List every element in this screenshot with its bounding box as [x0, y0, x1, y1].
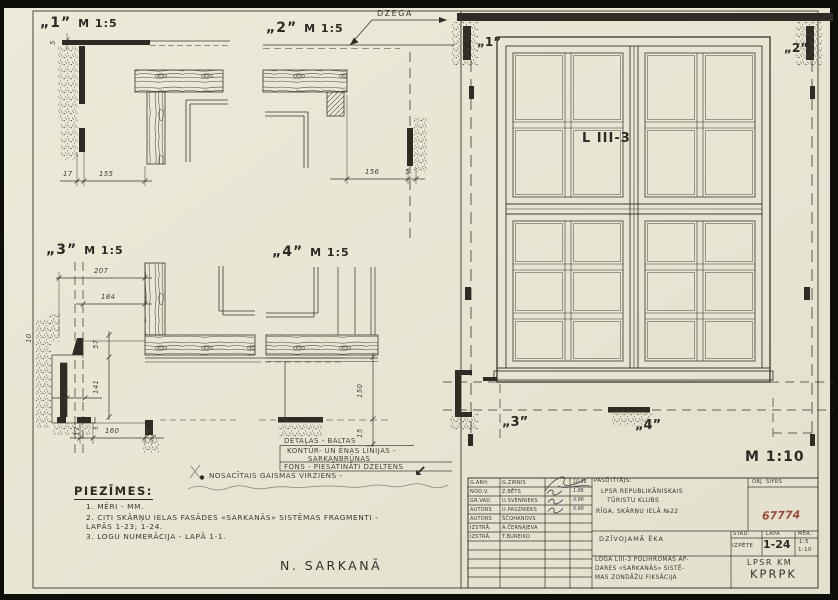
- elevation-marker-2: „2”: [784, 42, 808, 54]
- drawing-description-line2: DARES «SARKANĀS» SISTĒ-: [595, 567, 684, 573]
- object-code-value: 67774: [762, 509, 801, 521]
- scale-column-header: MĒR.: [798, 532, 812, 537]
- note-item-3: 3. LOGU NUMERĀCIJA - LAPĀ 1-1.: [86, 532, 398, 541]
- object-code-label: OBJ. ŠIFRS: [752, 480, 782, 485]
- d3-dim-10: 10: [26, 333, 33, 343]
- stage-value: IZPĒTE: [732, 544, 753, 550]
- elevation-marker-4: „4”: [635, 419, 661, 432]
- titleblock-row: G.ARH. G.ZIRNIS 10.86: [469, 478, 591, 487]
- drawing-description-line1: LOGA LIII-3 POLIHROMĀS AP-: [595, 558, 689, 564]
- d4-dim-15: 15: [357, 428, 364, 438]
- titleblock-row: GR.VAD. U.SVENNIEKS X.86: [469, 496, 591, 505]
- d3-dim-17: 17: [74, 426, 81, 436]
- note-item-2: 2. CITI SKĀRŅU IELAS FASĀDES «SARKANĀS» …: [86, 513, 398, 531]
- row-date: 10.86: [573, 480, 587, 485]
- d3-dim-207: 207: [94, 268, 108, 275]
- notes-title: PIEZĪMES:: [74, 486, 153, 500]
- d3-dim-5a: 5: [94, 426, 100, 430]
- d3-dim-57: 57: [93, 339, 100, 349]
- detail-4-linework: [259, 267, 392, 447]
- customer-address: RĪGA, SKĀRŅU IELĀ №22: [596, 509, 679, 515]
- notes-list: 1. MĒRI - MM. 2. CITI SKĀRŅU IELAS FASĀD…: [86, 502, 398, 543]
- row-role: IZSTRĀ.: [470, 534, 491, 540]
- detail-3-scale: M 1:5: [84, 244, 123, 257]
- titleblock-row: AUTORS ŠČOHANOVS: [469, 514, 591, 523]
- note-item-1: 1. MĒRI - MM.: [86, 502, 398, 511]
- dzega-callout-label: DZEGA: [377, 10, 413, 18]
- row-date: X.86: [573, 498, 584, 503]
- row-role: NOD.V.: [470, 489, 489, 495]
- titleblock-row: NOD.V. Z.BĒTS 1.86: [469, 487, 591, 496]
- legend-row-details: DETAĻAS - BALTAS: [284, 438, 356, 445]
- detail-2-number: „2”: [266, 20, 297, 36]
- detail-2-linework: [263, 17, 455, 238]
- row-role: G.ARH.: [470, 480, 489, 486]
- row-name: G.ZIRNIS: [502, 480, 526, 486]
- detail-1-title: „1”M 1:5: [40, 14, 118, 30]
- light-direction-label: NOSACĪTAIS GAISMAS VIRZIENS -: [209, 472, 342, 479]
- drawing-sheet: „1”M 1:5 „2”M 1:5 „3”M 1:5 „4”M 1:5 DZEG…: [0, 0, 838, 600]
- titleblock-row: IZSTRĀ. A.ČERNAJEVA: [469, 523, 591, 532]
- d4-dim-150: 150: [357, 384, 364, 398]
- legend-row-contour: KONTŪR- UN ĒNAS LĪNIJAS -: [287, 448, 396, 455]
- elevation-marker-3: „3”: [502, 416, 528, 429]
- d1-dim-17: 17: [63, 171, 73, 178]
- row-role: AUTORS: [470, 516, 492, 522]
- row-date: X.86: [573, 507, 584, 512]
- customer-name-line1: LPSR REPUBLIKĀNISKAIS: [601, 489, 683, 495]
- detail-3-number: „3”: [46, 242, 77, 258]
- sheet-number: 1-24: [763, 539, 791, 550]
- d3-dim-141: 141: [93, 380, 100, 394]
- d3-dim-18: 18: [60, 389, 68, 395]
- row-name: U.PASZNIEKS: [502, 507, 537, 513]
- row-name: Z.BĒTS: [502, 489, 521, 495]
- row-role: GR.VAD.: [470, 498, 492, 504]
- row-name: T.BUREIKO: [502, 534, 530, 540]
- row-name: U.SVENNIEKS: [502, 498, 538, 504]
- detail-1-number: „1”: [40, 15, 71, 31]
- organization-line2: KPRPK: [750, 569, 797, 581]
- customer-label: PASŪTĪTĀJS:: [594, 479, 632, 485]
- building-name: DZĪVOJAMĀ ĒKA: [599, 536, 664, 543]
- window-type-label: L III-3: [582, 132, 631, 145]
- detail-2-scale: M 1:5: [304, 22, 343, 35]
- d2-dim-5: 5: [405, 169, 410, 176]
- sheet-bottom-label: N. SARKANĀ: [280, 560, 382, 573]
- stage-column-header: STAD.: [733, 532, 750, 537]
- row-date: 1.86: [573, 489, 584, 494]
- d1-dim-5: 5: [50, 40, 57, 45]
- scale-value-2: 1:10: [798, 548, 812, 554]
- organization-line1: LPSR KM: [747, 559, 792, 567]
- light-direction-arrow-icon: ↙: [414, 464, 427, 479]
- d3-dim-5b: 5: [145, 428, 150, 435]
- row-name: A.ČERNAJEVA: [502, 525, 538, 531]
- sheet-column-header: LAPA: [766, 532, 780, 537]
- detail-4-number: „4”: [272, 244, 303, 260]
- d1-dim-155: 155: [99, 171, 113, 178]
- drawing-description-line3: MAS ZONDĀŽU FIKSĀCIJA: [595, 576, 677, 582]
- elevation-linework: [443, 13, 833, 446]
- scale-value-1: 1:5: [799, 540, 809, 546]
- detail-1-scale: M 1:5: [78, 17, 117, 30]
- legend-row-background: FONS - PIESĀTINĀTI DZELTENS: [284, 464, 403, 471]
- row-role: AUTORS: [470, 507, 492, 513]
- elevation-marker-1: „1”: [477, 36, 501, 48]
- detail-1-linework: [58, 33, 230, 186]
- row-name: ŠČOHANOVS: [502, 516, 536, 522]
- elevation-scale-label: M 1:10: [745, 450, 805, 464]
- detail-4-title: „4”M 1:5: [272, 243, 350, 259]
- customer-name-line2: TŪRISTU KLUBS: [607, 498, 659, 504]
- titleblock-row: AUTORS U.PASZNIEKS X.86: [469, 505, 591, 514]
- detail-2-title: „2”M 1:5: [266, 19, 344, 35]
- d3-dim-160: 160: [105, 428, 119, 435]
- detail-4-scale: M 1:5: [310, 246, 349, 259]
- d2-dim-156: 156: [365, 169, 379, 176]
- legend-row-contour-2: SARKANBRŪNAS: [308, 456, 370, 463]
- detail-3-title: „3”M 1:5: [46, 241, 124, 257]
- row-role: IZSTRĀ.: [470, 525, 491, 531]
- d3-dim-184: 184: [101, 294, 115, 301]
- titleblock-row: IZSTRĀ. T.BUREIKO: [469, 532, 591, 541]
